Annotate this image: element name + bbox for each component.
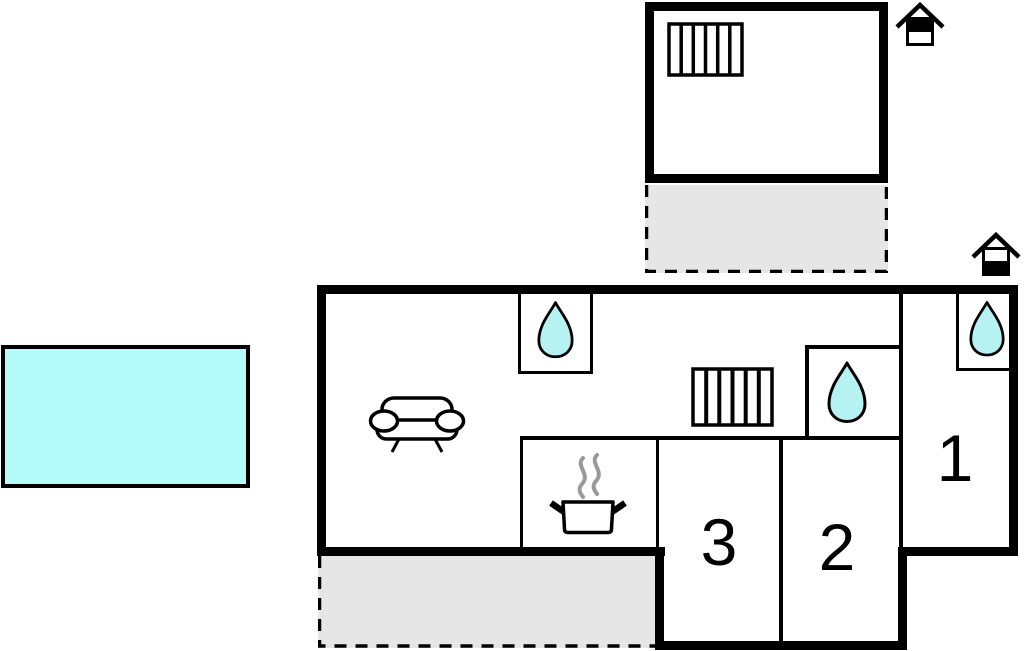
- wall-main-right: [1009, 285, 1018, 556]
- cooking-pot-icon: [546, 450, 630, 538]
- house-marker-main-icon: [971, 232, 1021, 278]
- sofa-icon: [368, 395, 466, 455]
- radiator-annex-icon: [667, 22, 744, 77]
- annex-building: [645, 2, 888, 183]
- wall-shower-right: [590, 294, 593, 374]
- wall-kitchen-left: [520, 436, 523, 547]
- wall-niche-bottom: [956, 368, 1012, 371]
- terrace-main: [318, 556, 655, 648]
- wall-extension-left: [655, 547, 664, 650]
- wall-bedroom-divider: [779, 440, 783, 641]
- bedroom-3-label: 3: [689, 509, 749, 575]
- swimming-pool: [1, 345, 250, 488]
- floor-plan: 1 3 2: [0, 0, 1024, 651]
- wall-shower-bottom: [518, 371, 593, 374]
- wall-main-bottom-right: [898, 547, 1018, 556]
- terrace-annex: [645, 185, 888, 273]
- wall-bathroom-left: [805, 345, 809, 436]
- bedroom-2-label: 2: [807, 514, 867, 580]
- wall-niche-left: [956, 294, 959, 371]
- bedroom-1-label: 1: [925, 425, 985, 491]
- wall-extension-right: [898, 547, 907, 650]
- wall-shower-left: [518, 294, 521, 374]
- wall-main-left: [317, 285, 326, 556]
- wall-kitchen-right: [656, 436, 659, 547]
- wall-main-bottom-left: [317, 547, 665, 556]
- wall-bedroom1-left: [899, 294, 903, 547]
- water-drop-shower-room-icon: [537, 299, 574, 360]
- wall-rooms-top: [520, 436, 902, 440]
- wall-bathroom-top: [805, 345, 902, 349]
- wall-main-top: [317, 285, 1018, 294]
- wall-extension-bottom: [655, 641, 907, 650]
- house-marker-annex-icon: [894, 2, 946, 48]
- water-drop-bedroom1-icon: [969, 298, 1005, 359]
- water-drop-bathroom-icon: [827, 361, 867, 423]
- radiator-main-icon: [691, 367, 774, 427]
